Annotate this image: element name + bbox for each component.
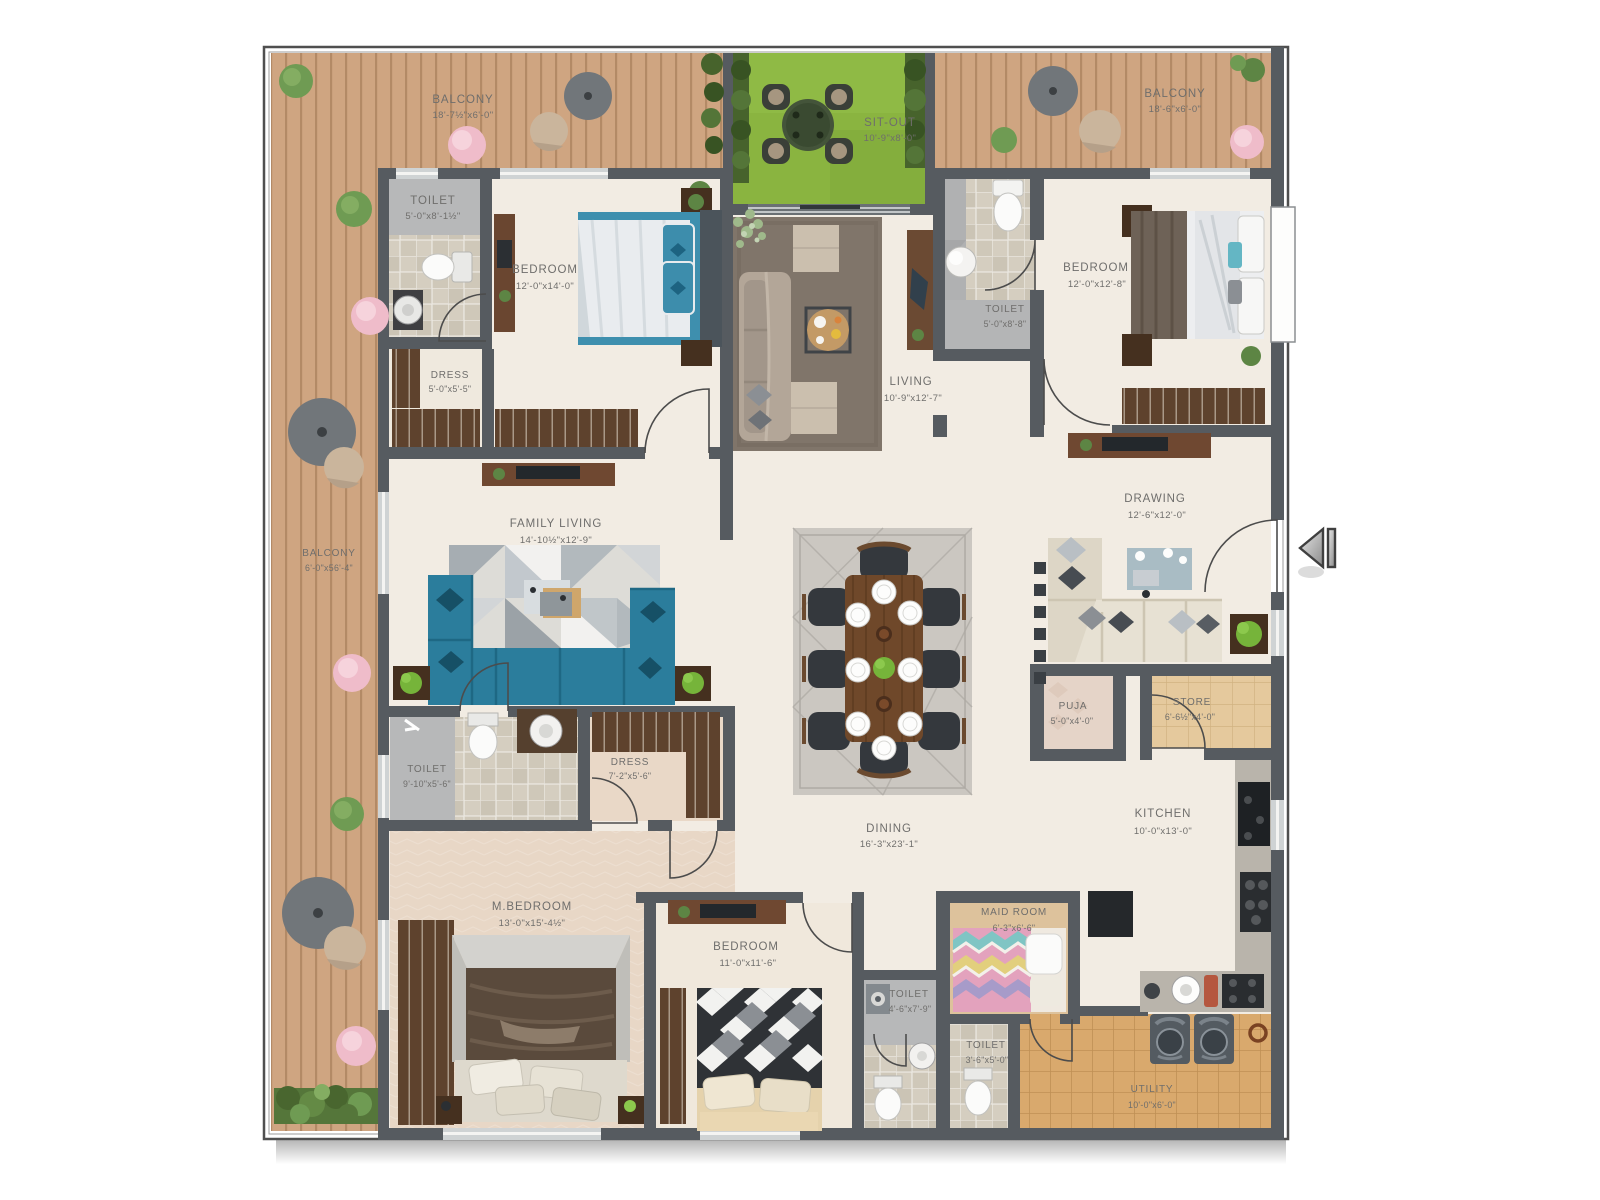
svg-text:BALCONY: BALCONY: [302, 548, 355, 559]
svg-text:BALCONY: BALCONY: [1144, 88, 1205, 100]
svg-text:5'-0"x8'-1½": 5'-0"x8'-1½": [405, 211, 460, 222]
svg-text:DRAWING: DRAWING: [1124, 493, 1185, 505]
svg-text:10'-0"x13'-0": 10'-0"x13'-0": [1134, 826, 1192, 837]
svg-text:BEDROOM: BEDROOM: [512, 264, 578, 276]
svg-text:12'-6"x12'-0": 12'-6"x12'-0": [1128, 510, 1186, 521]
svg-text:10'-9"x8'-0": 10'-9"x8'-0": [864, 133, 917, 144]
svg-text:LIVING: LIVING: [889, 376, 932, 388]
svg-text:MAID ROOM: MAID ROOM: [981, 907, 1047, 918]
svg-text:5'-0"x4'-0": 5'-0"x4'-0": [1051, 716, 1094, 726]
svg-text:TOILET: TOILET: [985, 304, 1025, 315]
svg-text:BALCONY: BALCONY: [432, 94, 493, 106]
svg-text:PUJA: PUJA: [1059, 701, 1088, 712]
svg-text:5'-0"x5'-5": 5'-0"x5'-5": [429, 384, 472, 394]
svg-text:M.BEDROOM: M.BEDROOM: [492, 901, 572, 913]
svg-text:TOILET: TOILET: [410, 195, 455, 207]
svg-text:TOILET: TOILET: [407, 764, 447, 775]
svg-text:SIT-OUT: SIT-OUT: [864, 117, 916, 129]
svg-text:UTILITY: UTILITY: [1131, 1084, 1174, 1095]
svg-text:STORE: STORE: [1173, 697, 1211, 708]
svg-text:FAMILY LIVING: FAMILY LIVING: [510, 518, 602, 530]
svg-text:10'-9"x12'-7": 10'-9"x12'-7": [884, 393, 942, 404]
svg-text:10'-0"x6'-0": 10'-0"x6'-0": [1128, 1100, 1176, 1110]
svg-text:DRESS: DRESS: [611, 757, 649, 768]
svg-text:12'-0"x14'-0": 12'-0"x14'-0": [516, 281, 574, 292]
svg-text:6'-6½"x4'-0": 6'-6½"x4'-0": [1165, 712, 1215, 722]
svg-text:KITCHEN: KITCHEN: [1135, 808, 1192, 820]
svg-text:18'-7½"x6'-0": 18'-7½"x6'-0": [433, 110, 494, 121]
svg-text:DINING: DINING: [866, 823, 912, 835]
svg-text:6'-3"x6'-6": 6'-3"x6'-6": [993, 923, 1036, 933]
svg-text:3'-6"x5'-0": 3'-6"x5'-0": [966, 1055, 1009, 1065]
svg-text:BEDROOM: BEDROOM: [713, 941, 779, 953]
svg-text:9'-10"x5'-6": 9'-10"x5'-6": [403, 779, 451, 789]
svg-text:TOILET: TOILET: [889, 989, 929, 1000]
svg-text:7'-2"x5'-6": 7'-2"x5'-6": [609, 771, 652, 781]
svg-text:5'-0"x8'-8": 5'-0"x8'-8": [984, 319, 1027, 329]
svg-text:DRESS: DRESS: [431, 370, 469, 381]
svg-text:BEDROOM: BEDROOM: [1063, 262, 1129, 274]
svg-text:4'-6"x7'-9": 4'-6"x7'-9": [889, 1004, 932, 1014]
svg-text:12'-0"x12'-8": 12'-0"x12'-8": [1068, 279, 1126, 290]
svg-text:13'-0"x15'-4½": 13'-0"x15'-4½": [499, 918, 566, 929]
svg-text:18'-6"x6'-0": 18'-6"x6'-0": [1149, 104, 1202, 115]
svg-text:11'-0"x11'-6": 11'-0"x11'-6": [720, 958, 777, 969]
svg-text:6'-0"x56'-4": 6'-0"x56'-4": [305, 563, 353, 573]
svg-text:16'-3"x23'-1": 16'-3"x23'-1": [860, 839, 918, 850]
svg-text:TOILET: TOILET: [966, 1040, 1006, 1051]
svg-text:14'-10½"x12'-9": 14'-10½"x12'-9": [520, 535, 592, 546]
